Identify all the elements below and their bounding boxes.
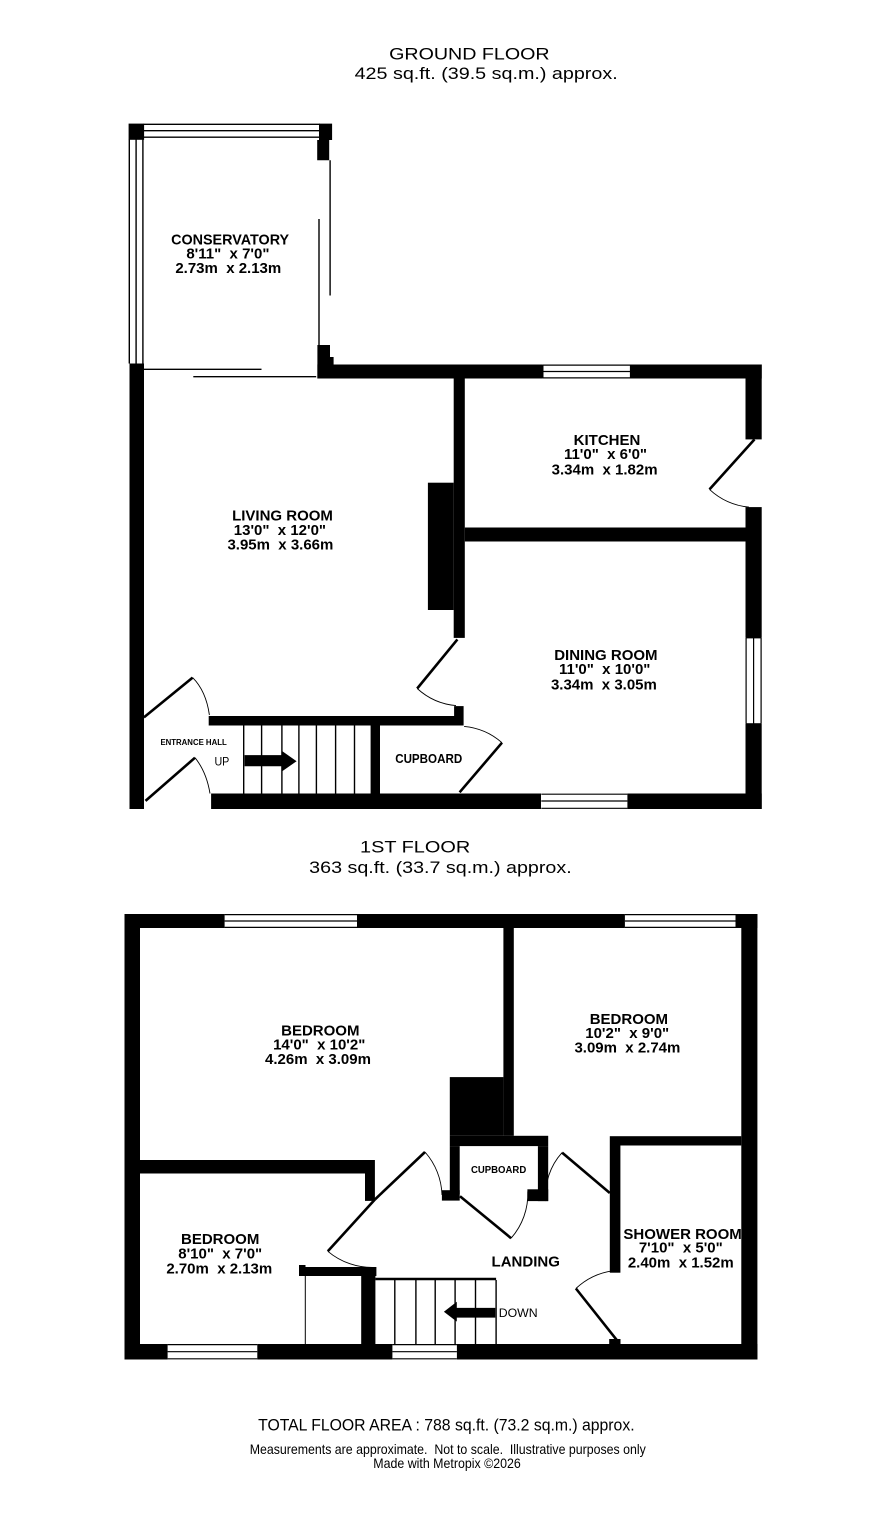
svg-text:425 sq.ft. (39.5 sq.m.) approx: 425 sq.ft. (39.5 sq.m.) approx. xyxy=(355,65,618,83)
svg-text:1ST FLOOR: 1ST FLOOR xyxy=(360,839,470,857)
svg-text:Made with Metropix ©2026: Made with Metropix ©2026 xyxy=(373,1455,521,1471)
svg-text:CUPBOARD: CUPBOARD xyxy=(471,1165,526,1176)
svg-text:DOWN: DOWN xyxy=(499,1306,538,1320)
svg-text:LANDING: LANDING xyxy=(492,1253,560,1270)
svg-text:2.73m x 2.13m: 2.73m x 2.13m xyxy=(175,260,281,277)
svg-text:3.95m x 3.66m: 3.95m x 3.66m xyxy=(227,537,333,554)
svg-text:4.26m x 3.09m: 4.26m x 3.09m xyxy=(265,1051,371,1068)
svg-text:GROUND FLOOR: GROUND FLOOR xyxy=(389,46,549,64)
svg-text:363 sq.ft. (33.7 sq.m.) approx: 363 sq.ft. (33.7 sq.m.) approx. xyxy=(309,859,572,877)
svg-text:UP: UP xyxy=(214,755,229,769)
svg-text:3.34m x 1.82m: 3.34m x 1.82m xyxy=(552,462,658,479)
svg-text:2.70m x 2.13m: 2.70m x 2.13m xyxy=(166,1260,272,1277)
svg-text:11'0" x 6'0": 11'0" x 6'0" xyxy=(564,446,647,463)
svg-text:2.40m x 1.52m: 2.40m x 1.52m xyxy=(628,1255,734,1272)
svg-text:ENTRANCE HALL: ENTRANCE HALL xyxy=(160,738,227,747)
svg-text:3.09m x 2.74m: 3.09m x 2.74m xyxy=(574,1040,680,1057)
svg-text:TOTAL FLOOR AREA : 788 sq.ft.: TOTAL FLOOR AREA : 788 sq.ft. (73.2 sq.m… xyxy=(258,1417,634,1435)
svg-text:CUPBOARD: CUPBOARD xyxy=(395,752,462,766)
svg-text:3.34m x 3.05m: 3.34m x 3.05m xyxy=(551,677,657,694)
